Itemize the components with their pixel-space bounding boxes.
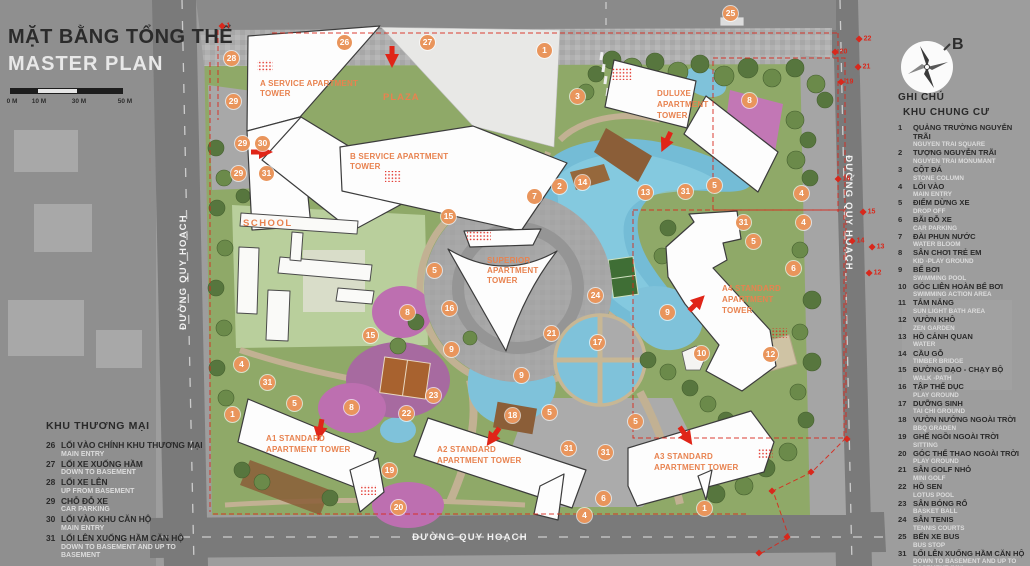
- label-b-service-1: B SERVICE APARTMENT: [350, 152, 448, 161]
- road-label-left: ĐƯỜNG QUY HOẠCH: [177, 214, 189, 330]
- legend-item: 14CẦU GỖTIMBER BRIDGE: [898, 350, 1028, 366]
- road-label-bottom: ĐƯỜNG QUY HOẠCH: [412, 531, 528, 543]
- legend-item: 12VƯỜN KHÔZEN GARDEN: [898, 316, 1028, 332]
- legend-item: 13HỒ CẢNH QUANWATER: [898, 333, 1028, 349]
- legend-apartments: GHI CHÚ KHU CHUNG CƯ 1QUẢNG TRƯỜNG NGUYỄ…: [898, 92, 1028, 566]
- label-duluxe-3: TOWER: [657, 111, 688, 120]
- legend-item: 30LỐI VÀO KHU CĂN HỘMAIN ENTRY: [46, 515, 210, 533]
- legend-item: 31LỐI LÊN XUỐNG HẦM CĂN HỘDOWN TO BASEME…: [898, 550, 1028, 566]
- legend-item: 27LỐI XE XUỐNG HẦMDOWN TO BASEMENT: [46, 460, 210, 478]
- label-superior-3: TOWER: [487, 276, 518, 285]
- legend-item: 7ĐÀI PHUN NƯỚCWATER BLOOM: [898, 233, 1028, 249]
- scale-0: 0 M: [7, 98, 18, 105]
- label-a-service-2: TOWER: [260, 89, 291, 98]
- legend-item: 26LỐI VÀO CHÍNH KHU THƯƠNG MẠIMAIN ENTRY: [46, 441, 210, 459]
- round-pool: [555, 315, 645, 405]
- legend-heading: KHU THƯƠNG MẠI: [46, 420, 210, 432]
- label-a3-2: APARTMENT TOWER: [654, 463, 738, 472]
- legend-item: 17DƯỠNG SINHTAI CHI GROUND: [898, 400, 1028, 416]
- label-a1-1: A1 STANDARD: [266, 434, 325, 443]
- scale-30: 30 M: [72, 98, 86, 105]
- label-superior-1: SUPERIOR: [487, 256, 530, 265]
- title-block: MẶT BẰNG TỔNG THỂ MASTER PLAN 0 M 10 M 3…: [8, 26, 208, 110]
- label-duluxe-2: APARTMENT: [657, 100, 708, 109]
- legend-item: 22HỒ SENLOTUS POOL: [898, 483, 1028, 499]
- label-superior-2: APARTMENT: [487, 266, 538, 275]
- legend-items: 1QUẢNG TRƯỜNG NGUYỄN TRÃINGUYEN TRAI SQU…: [898, 124, 1028, 566]
- legend-item: 25BẾN XE BUSBUS STOP: [898, 533, 1028, 549]
- legend-item: 31LỐI LÊN XUỐNG HẦM CĂN HỘDOWN TO BASEME…: [46, 534, 210, 560]
- label-b-service-2: TOWER: [350, 162, 381, 171]
- legend-heading: GHI CHÚ: [898, 92, 1028, 103]
- scale-bar: 0 M 10 M 30 M 50 M: [8, 88, 158, 110]
- kid-playground: [318, 383, 386, 433]
- label-plaza: PLAZA: [383, 92, 420, 103]
- legend-item: 9BỂ BƠISWIMMING POOL: [898, 266, 1028, 282]
- compass-north-label: B: [952, 36, 964, 54]
- label-a-service-1: A SERVICE APARTMENT: [260, 79, 358, 88]
- legend-item: 8SÂN CHƠI TRẺ EMKID -PLAY GROUND: [898, 249, 1028, 265]
- legend-item: 28LỐI XE LÊNUP FROM BASEMENT: [46, 478, 210, 496]
- legend-subheading: KHU CHUNG CƯ: [903, 107, 1028, 118]
- legend-item: 23SÂN BÓNG RỔBASKET BALL: [898, 500, 1028, 516]
- legend-item: 6BÃI ĐỖ XECAR PARKING: [898, 216, 1028, 232]
- legend-item: 19GHẾ NGỒI NGOÀI TRỜISITTING: [898, 433, 1028, 449]
- scale-10: 10 M: [32, 98, 46, 105]
- label-a2-1: A2 STANDARD: [437, 445, 496, 454]
- legend-commercial: KHU THƯƠNG MẠI 26LỐI VÀO CHÍNH KHU THƯƠN…: [46, 420, 210, 561]
- label-a3-1: A3 STANDARD: [654, 452, 713, 461]
- compass: B: [896, 36, 986, 96]
- legend-item: 5ĐIỂM DỪNG XEDROP OFF: [898, 199, 1028, 215]
- legend-items: 26LỐI VÀO CHÍNH KHU THƯƠNG MẠIMAIN ENTRY…: [46, 441, 210, 560]
- road-label-right: ĐƯỜNG QUY HOẠCH: [843, 155, 855, 271]
- kid-playground: [372, 286, 432, 338]
- legend-item: 29CHỖ ĐỖ XECAR PARKING: [46, 497, 210, 515]
- road-top: [196, 0, 836, 32]
- legend-item: 4LỐI VÀOMAIN ENTRY: [898, 183, 1028, 199]
- legend-item: 24SÂN TENISTENNIS COURTS: [898, 516, 1028, 532]
- legend-item: 21SÂN GOLF NHỎMINI GOLF: [898, 466, 1028, 482]
- compass-tick: [944, 44, 950, 50]
- legend-item: 11TẮM NẮNGSUN LIGHT BATH AREA: [898, 299, 1028, 315]
- label-a2-2: APARTMENT TOWER: [437, 456, 521, 465]
- label-a1-2: APARTMENT TOWER: [266, 445, 350, 454]
- lotus-pond: [380, 417, 416, 443]
- legend-item: 2TƯỢNG NGUYỄN TRÃINGUYEN TRAI MONUMANT: [898, 149, 1028, 165]
- legend-item: 10GÓC LIÊN HOÀN BỂ BƠISWIMMING ACTION AR…: [898, 283, 1028, 299]
- legend-item: 3CỘT ĐÁSTONE COLUMN: [898, 166, 1028, 182]
- legend-item: 18VƯỜN NƯỚNG NGOÀI TRỜIBBQ GRADEN: [898, 416, 1028, 432]
- legend-item: 15ĐƯỜNG DẠO - CHẠY BỘWALK -PATH: [898, 366, 1028, 382]
- legend-item: 16TẬP THỂ DỤCPLAY GROUND: [898, 383, 1028, 399]
- bus-shelter: [720, 17, 744, 26]
- label-a4-2: APARTMENT: [722, 295, 773, 304]
- label-a4-1: A4 STANDARD: [722, 284, 781, 293]
- label-a4-3: TOWER: [722, 306, 753, 315]
- legend-item: 1QUẢNG TRƯỜNG NGUYỄN TRÃINGUYEN TRAI SQU…: [898, 124, 1028, 148]
- sheet-title-vi: MẶT BẰNG TỔNG THỂ: [8, 26, 208, 49]
- basketball-court: [380, 357, 431, 399]
- scale-50: 50 M: [118, 98, 132, 105]
- label-duluxe-1: DULUXE: [657, 89, 692, 98]
- sheet-title-en: MASTER PLAN: [8, 53, 208, 76]
- label-school: SCHOOL: [243, 218, 293, 229]
- master-plan-sheet: PLAZA A SERVICE APARTMENT TOWER B SERVIC…: [0, 0, 1030, 566]
- legend-item: 20GÓC THỂ THAO NGOÀI TRỜIPLAY GROUND: [898, 450, 1028, 466]
